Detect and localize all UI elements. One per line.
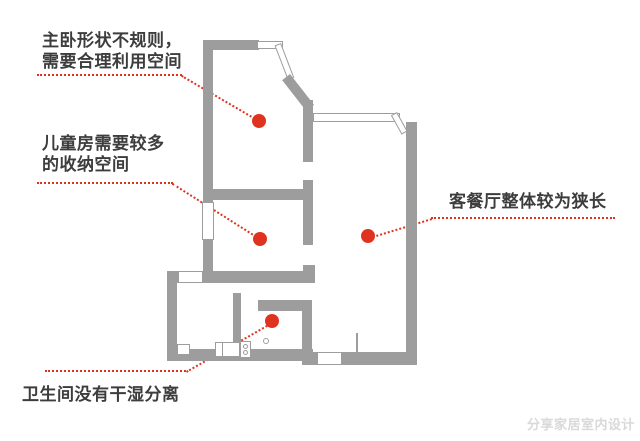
floorplan-annotation-diagram: 主卧形状不规则， 需要合理利用空间 儿童房需要较多 的收纳空间 客餐厅整体较为狭…	[0, 0, 640, 441]
wall-living-right	[406, 122, 417, 365]
leader-diagonal-master	[181, 75, 259, 122]
wall-bathroom-partition	[233, 293, 241, 345]
leader-underline-kids	[37, 182, 173, 184]
annotation-kids-line1: 儿童房需要较多	[42, 133, 165, 154]
toilet-knob-top	[243, 344, 248, 349]
leader-diagonal-living	[376, 218, 432, 237]
kitchen-sink-fixture	[177, 344, 190, 355]
wall-master-kids-divider	[203, 189, 313, 200]
annotation-living-line1: 客餐厅整体较为狭长	[449, 191, 607, 212]
annotation-bathroom: 卫生间没有干湿分离	[22, 384, 180, 405]
toilet-knob-bottom	[243, 350, 248, 355]
kitchen-counter-divider	[222, 343, 223, 356]
wall-kids-right	[303, 180, 313, 245]
wall-master-top	[203, 40, 259, 50]
wall-bottom-right-a	[302, 352, 318, 365]
entry-partition-line	[356, 333, 358, 353]
annotation-living-dining: 客餐厅整体较为狭长	[449, 191, 607, 212]
window-kitchen-top	[178, 271, 203, 283]
wall-bathroom-top	[258, 300, 312, 311]
wall-bottom-right-b	[341, 352, 417, 365]
marker-dot-master-bedroom	[252, 114, 266, 128]
window-living-top	[313, 113, 400, 122]
annotation-master-line1: 主卧形状不规则，	[42, 30, 182, 51]
annotation-master-bedroom: 主卧形状不规则， 需要合理利用空间	[42, 30, 182, 72]
leader-underline-master	[37, 74, 182, 76]
wall-kitchen-left	[167, 271, 177, 361]
floor-drain-icon	[263, 338, 269, 344]
annotation-master-line2: 需要合理利用空间	[42, 51, 182, 72]
watermark-text: 分享家居室内设计	[527, 417, 635, 432]
marker-dot-bathroom	[265, 314, 279, 328]
leader-underline-living	[431, 217, 615, 219]
toilet-fixture	[240, 341, 251, 358]
leader-underline-bathroom	[45, 370, 186, 372]
marker-dot-kids-room	[253, 232, 267, 246]
wall-master-right	[303, 100, 313, 162]
window-master-diagonal	[274, 43, 294, 80]
entrance-door	[317, 352, 342, 365]
kitchen-counter-fixture	[215, 342, 240, 357]
marker-dot-living-dining	[361, 229, 375, 243]
window-kids-left	[202, 202, 214, 240]
wall-kids-bottom	[203, 271, 315, 283]
annotation-bathroom-line1: 卫生间没有干湿分离	[22, 384, 180, 405]
annotation-kids-line2: 的收纳空间	[42, 154, 165, 175]
annotation-kids-room: 儿童房需要较多 的收纳空间	[42, 133, 165, 175]
wall-master-left	[203, 40, 213, 202]
